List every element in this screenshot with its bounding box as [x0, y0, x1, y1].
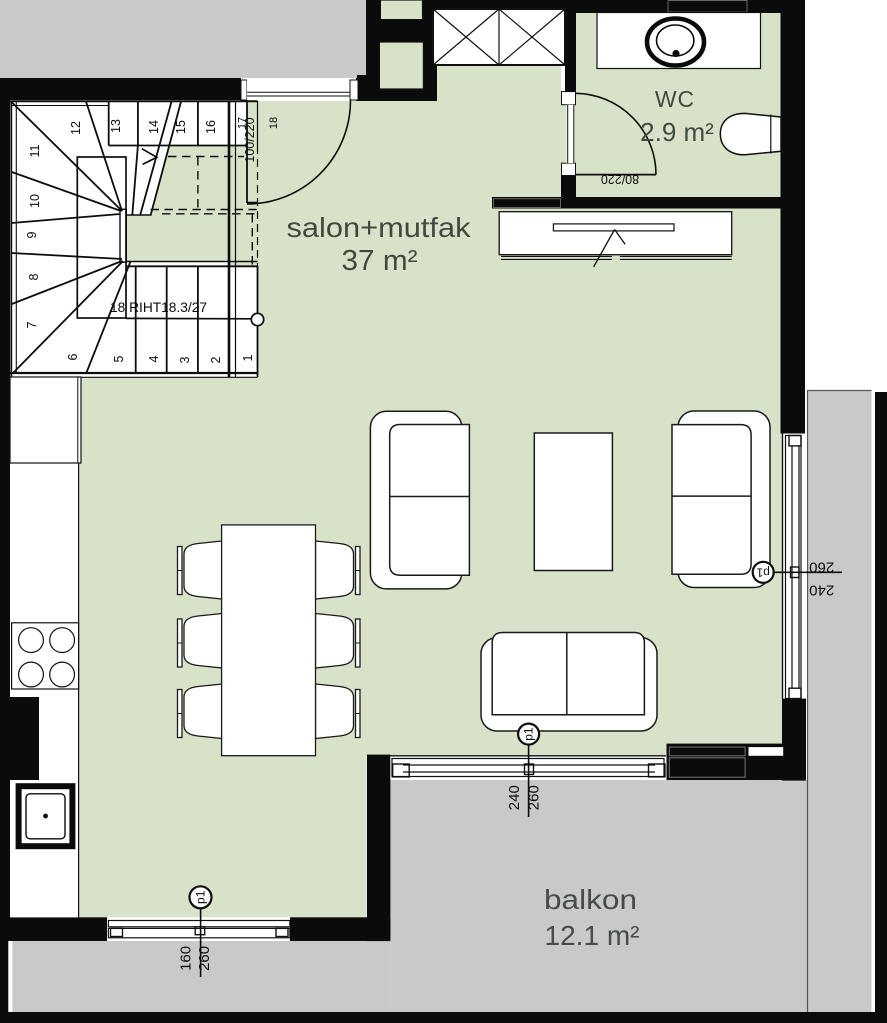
- svg-text:260: 260: [809, 559, 834, 576]
- svg-text:4: 4: [147, 355, 161, 362]
- svg-text:p1: p1: [522, 727, 536, 741]
- svg-text:160: 160: [178, 946, 195, 971]
- svg-text:p1: p1: [194, 890, 208, 904]
- svg-text:11: 11: [28, 144, 42, 157]
- svg-text:14: 14: [147, 120, 161, 134]
- svg-text:10: 10: [28, 194, 42, 208]
- svg-text:2: 2: [209, 356, 223, 363]
- svg-text:80/220: 80/220: [601, 172, 639, 186]
- svg-text:balkon: balkon: [544, 884, 637, 915]
- svg-text:WC: WC: [655, 86, 695, 112]
- svg-text:16: 16: [204, 120, 218, 134]
- svg-text:1: 1: [241, 354, 255, 361]
- svg-text:100/220: 100/220: [243, 117, 257, 162]
- svg-text:salon+mutfak: salon+mutfak: [287, 212, 472, 243]
- svg-text:3: 3: [178, 356, 192, 363]
- svg-text:15: 15: [174, 120, 188, 134]
- svg-text:13: 13: [109, 119, 123, 133]
- svg-text:18 RIHT18.3/27: 18 RIHT18.3/27: [110, 300, 207, 315]
- svg-text:p1: p1: [756, 565, 770, 579]
- svg-text:240: 240: [506, 785, 523, 810]
- svg-text:9: 9: [25, 231, 39, 238]
- svg-text:6: 6: [66, 353, 80, 360]
- svg-text:260: 260: [196, 946, 213, 971]
- svg-text:240: 240: [809, 582, 834, 599]
- svg-text:37 m²: 37 m²: [342, 245, 418, 277]
- svg-text:260: 260: [526, 785, 543, 810]
- svg-text:8: 8: [27, 273, 41, 280]
- svg-text:12.1 m²: 12.1 m²: [545, 920, 640, 951]
- svg-text:18: 18: [268, 117, 280, 129]
- svg-text:7: 7: [25, 321, 39, 328]
- svg-text:5: 5: [112, 355, 126, 362]
- svg-text:2.9 m²: 2.9 m²: [640, 117, 714, 147]
- svg-text:12: 12: [69, 121, 83, 135]
